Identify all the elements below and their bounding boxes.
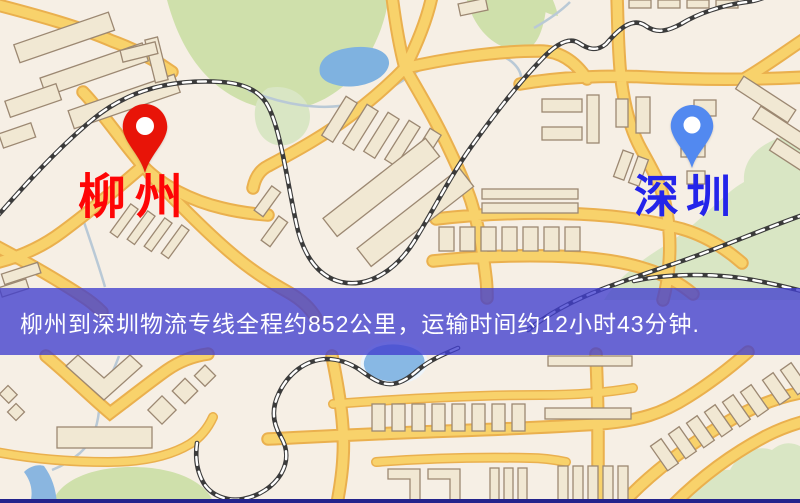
map-background	[0, 0, 800, 503]
bottom-strip	[0, 499, 800, 503]
red-location-pin-icon[interactable]	[118, 99, 172, 175]
map-canvas[interactable]: 柳州 深圳 柳州到深圳物流专线全程约852公里，运输时间约12小时43分钟.	[0, 0, 800, 503]
route-info-banner: 柳州到深圳物流专线全程约852公里，运输时间约12小时43分钟.	[0, 288, 800, 355]
route-info-text: 柳州到深圳物流专线全程约852公里，运输时间约12小时43分钟.	[20, 305, 700, 339]
blue-location-pin-icon[interactable]	[666, 100, 718, 170]
